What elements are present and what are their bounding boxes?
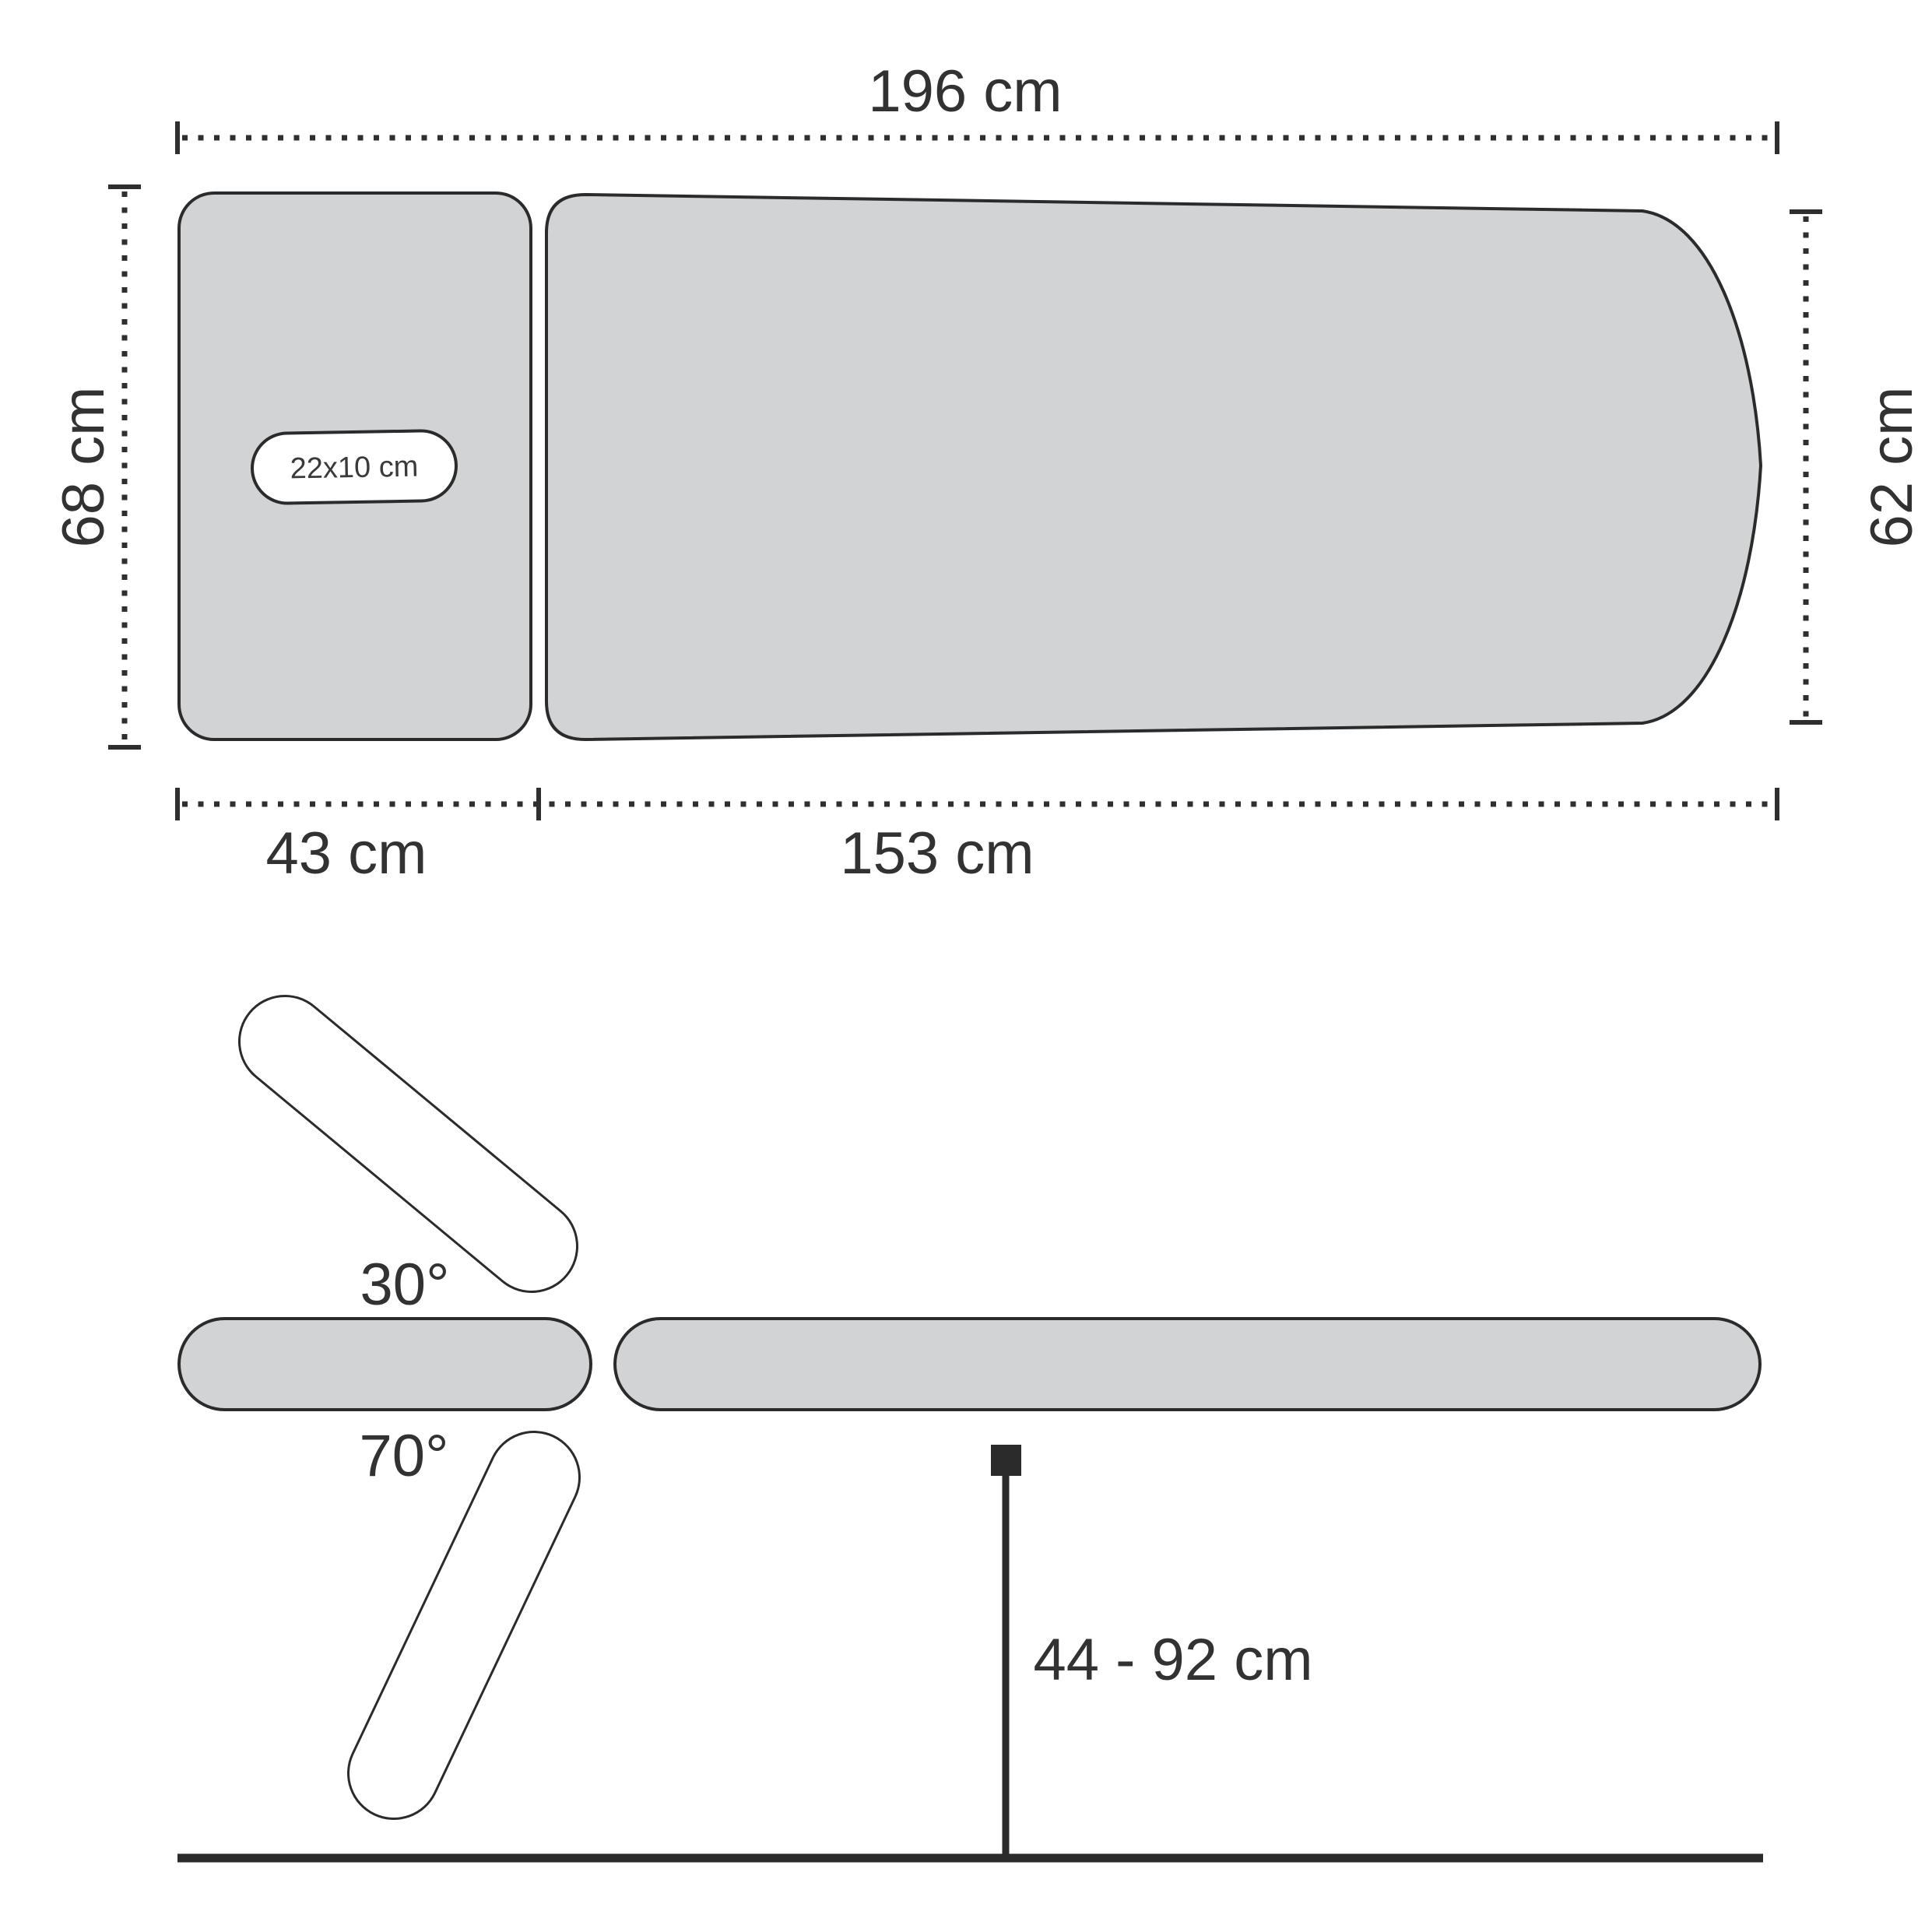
head-section-length-label: 43 cm xyxy=(266,820,427,887)
headrest-raised-position xyxy=(285,1042,532,1246)
face-hole: 22x10 cm xyxy=(287,451,422,486)
headrest-up-angle-label: 30° xyxy=(360,1252,450,1318)
headrest-down-angle-label: 70° xyxy=(360,1423,449,1489)
headrest-lowered-position xyxy=(394,1477,534,1773)
height-dimension: 44 - 92 cm xyxy=(991,1445,1313,1860)
headrest-raised-fill xyxy=(285,1042,532,1246)
head-width-label: 68 cm xyxy=(51,387,117,548)
foot-width-dimension: 62 cm xyxy=(1790,212,1925,722)
height-marker-square xyxy=(991,1445,1021,1476)
side-view: 30° 70° 44 - 92 cm xyxy=(177,1042,1763,1860)
height-range-label: 44 - 92 cm xyxy=(1033,1627,1312,1693)
section-length-dimension: 43 cm 153 cm xyxy=(177,788,1777,887)
total-length-dimension: 196 cm xyxy=(177,58,1777,154)
main-section-length-label: 153 cm xyxy=(840,820,1034,887)
face-hole-label: 22x10 cm xyxy=(290,451,418,486)
head-section-top-view: 22x10 cm xyxy=(179,193,531,739)
total-length-label: 196 cm xyxy=(868,58,1062,125)
head-width-dimension: 68 cm xyxy=(51,187,141,747)
main-section-surface xyxy=(546,195,1761,739)
dimension-diagram-page: 196 cm 22x10 cm 68 cm xyxy=(0,0,1932,1932)
foot-width-label: 62 cm xyxy=(1859,387,1925,548)
headrest-lowered-fill xyxy=(394,1477,534,1773)
top-view: 196 cm 22x10 cm 68 cm xyxy=(51,58,1925,887)
massage-table-dimension-diagram: 196 cm 22x10 cm 68 cm xyxy=(0,0,1932,1932)
